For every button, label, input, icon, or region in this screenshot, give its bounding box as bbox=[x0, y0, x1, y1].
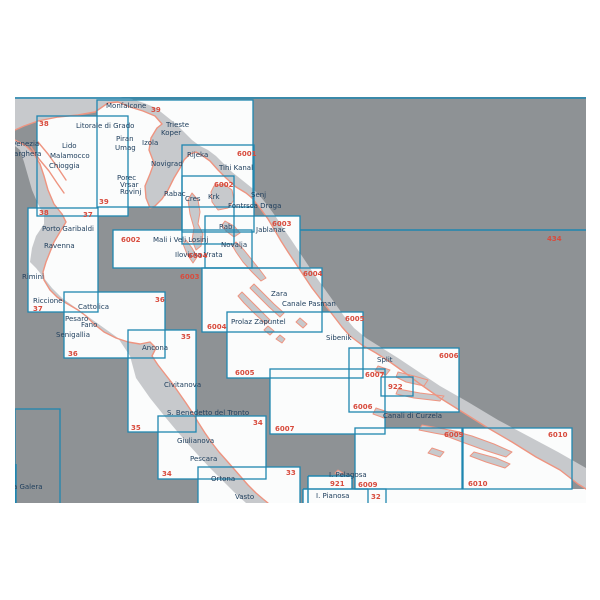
place-giulianova: Giulianova bbox=[177, 437, 214, 445]
chart-6007-top: 6007 bbox=[365, 371, 385, 379]
chart-38-top: 38 bbox=[39, 120, 49, 128]
chart-35-top: 35 bbox=[181, 333, 191, 341]
index-map-svg: MonfalconeTriesteKoperPiranIzolaUmagNovi… bbox=[15, 97, 586, 503]
place-piran: Piran bbox=[116, 135, 134, 143]
chart-6004-bottom: 6004 bbox=[207, 323, 227, 331]
place-fano: Fano bbox=[81, 321, 97, 329]
place-porto-garibaldi: Porto Garibaldi bbox=[42, 225, 94, 233]
place-krk: Krk bbox=[208, 193, 220, 201]
chart-921: 921 bbox=[330, 480, 345, 488]
place-canali-di-curzela: Canali di Curzela bbox=[383, 412, 442, 420]
chart-38-bottom: 38 bbox=[39, 209, 49, 217]
place-ravenna: Ravenna bbox=[44, 242, 75, 250]
chart-6003-top: 6003 bbox=[272, 220, 292, 228]
place-la-galera: la Galera bbox=[15, 483, 43, 491]
chart-36-bottom: 36 bbox=[68, 350, 78, 358]
place-izola: Izola bbox=[142, 139, 158, 147]
place-koper: Koper bbox=[161, 129, 181, 137]
chart-6009-top: 6009 bbox=[444, 431, 464, 439]
place-prolaz-zapuntel: Prolaz Zapuntel bbox=[231, 318, 286, 326]
place-tihi-kanal: Tihi Kanal bbox=[218, 164, 253, 172]
place-ortona: Ortona bbox=[211, 475, 235, 483]
place-canale-pasman: Canale Pasman bbox=[282, 300, 336, 308]
place-cattolica: Cattolica bbox=[78, 303, 109, 311]
chart-32: 32 bbox=[371, 493, 381, 501]
chart-34-top: 34 bbox=[253, 419, 263, 427]
place-fontrsca-draga: Fontrsca Draga bbox=[228, 202, 281, 210]
chart-6002-lower: 6002 bbox=[121, 236, 141, 244]
chart-39-top: 39 bbox=[151, 106, 161, 114]
place-lido: Lido bbox=[62, 142, 77, 150]
chart-6002-upper: 6002 bbox=[214, 181, 234, 189]
chart-6006-bottom: 6006 bbox=[353, 403, 373, 411]
chart-catalog-page: MonfalconeTriesteKoperPiranIzolaUmagNovi… bbox=[0, 0, 600, 600]
chart-37-bottom: 37 bbox=[33, 305, 43, 313]
place-senj: Senj bbox=[251, 191, 266, 199]
chart-6005-top: 6005 bbox=[345, 315, 365, 323]
chart-6004-top: 6004 bbox=[303, 270, 323, 278]
place-venezia: Venezia bbox=[15, 140, 39, 148]
place-i-pelagosa: I. Pelagosa bbox=[329, 471, 367, 479]
place-vasto: Vasto bbox=[235, 493, 254, 501]
place-split: Split bbox=[377, 356, 393, 364]
place-riccione: Riccione bbox=[33, 297, 62, 305]
chart-37-top: 37 bbox=[83, 211, 93, 219]
place-pescara: Pescara bbox=[190, 455, 217, 463]
chart-6004-mid: 6004 bbox=[188, 252, 208, 260]
chart-922: 922 bbox=[388, 383, 403, 391]
chart-6006-top: 6006 bbox=[439, 352, 459, 360]
place-litorale-di-grado: Litorale di Grado bbox=[76, 122, 134, 130]
chart-6007-bottom: 6007 bbox=[275, 425, 295, 433]
place-marghera: Marghera bbox=[15, 150, 41, 158]
chart-35-bottom: 35 bbox=[131, 424, 141, 432]
chart-6005-bottom: 6005 bbox=[235, 369, 255, 377]
place-malamocco: Malamocco bbox=[50, 152, 90, 160]
place-i-pianosa: I. Pianosa bbox=[316, 492, 349, 500]
place-cres: Cres bbox=[185, 195, 201, 203]
chart-6001: 6001 bbox=[237, 150, 257, 158]
place-rab: Rab bbox=[219, 223, 233, 231]
chart-6009-bottom: 6009 bbox=[358, 481, 378, 489]
adriatic-index-map: MonfalconeTriesteKoperPiranIzolaUmagNovi… bbox=[15, 97, 586, 503]
place-mali-i-veli-losinj: Mali i Veli Losinj bbox=[153, 236, 208, 244]
chart-434: 434 bbox=[547, 235, 562, 243]
chart-6003-bottom: 6003 bbox=[180, 273, 200, 281]
chart-6010-bottom: 6010 bbox=[468, 480, 488, 488]
place-chioggia: Chioggia bbox=[49, 162, 80, 170]
place-civitanova: Civitanova bbox=[164, 381, 201, 389]
place-novalja: Novalja bbox=[221, 241, 247, 249]
place-rimini: Rimini bbox=[22, 273, 44, 281]
place-rijeka: Rijeka bbox=[187, 151, 208, 159]
place-senigallia: Senigallia bbox=[56, 331, 90, 339]
place-ancona: Ancona bbox=[142, 344, 168, 352]
place-umag: Umag bbox=[115, 144, 136, 152]
place-sibenik: Sibenik bbox=[326, 334, 353, 342]
place-trieste: Trieste bbox=[165, 121, 189, 129]
chart-36-top: 36 bbox=[155, 296, 165, 304]
place-monfalcone: Monfalcone bbox=[106, 102, 146, 110]
chart-39-bottom: 39 bbox=[99, 198, 109, 206]
place-s-benedetto-del-tronto: S. Benedetto del Tronto bbox=[167, 409, 249, 417]
chart-6010-top: 6010 bbox=[548, 431, 568, 439]
place-zara: Zara bbox=[271, 290, 287, 298]
chart-33: 33 bbox=[286, 469, 296, 477]
chart-34-bottom: 34 bbox=[162, 470, 172, 478]
place-rabac: Rabac bbox=[164, 190, 186, 198]
place-novigrad: Novigrad bbox=[151, 160, 183, 168]
place-rovinj: Rovinj bbox=[120, 188, 141, 196]
